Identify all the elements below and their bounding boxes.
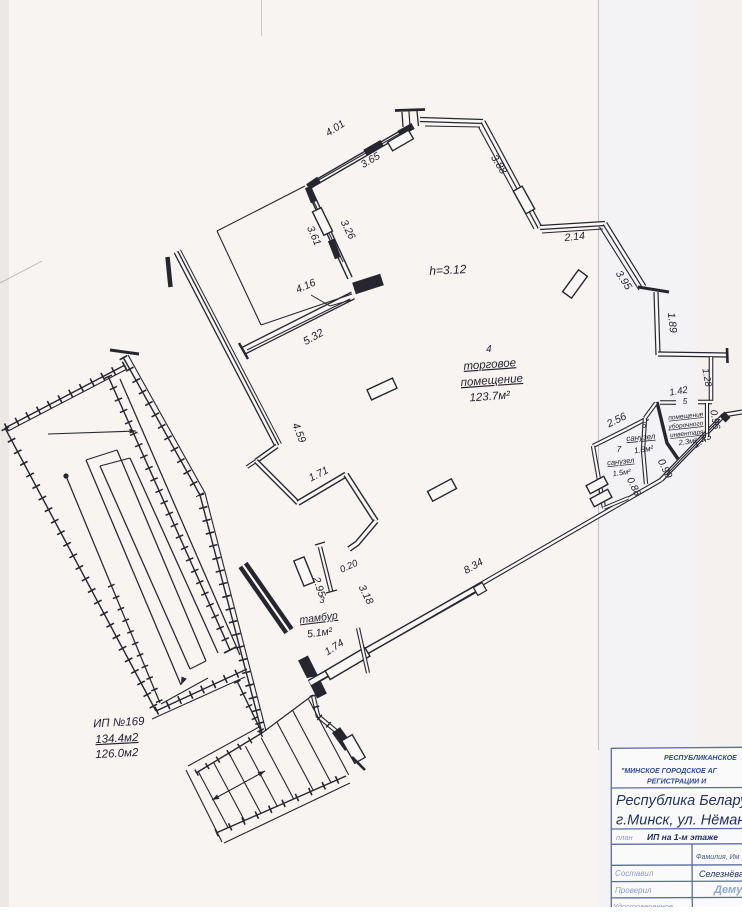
svg-text:h=3.12: h=3.12 (429, 262, 467, 278)
svg-text:Удостоверенное: Удостоверенное (612, 902, 673, 907)
svg-text:Составил: Составил (615, 869, 654, 878)
svg-text:134.4м2: 134.4м2 (95, 732, 139, 746)
svg-text:Проверил: Проверил (615, 886, 652, 895)
svg-text:Фамилия, Им: Фамилия, Им (696, 854, 740, 861)
svg-text:ИП на 1-м этаже: ИП на 1-м этаже (647, 832, 718, 842)
svg-text:7: 7 (617, 445, 622, 454)
svg-text:РЕГИСТРАЦИИ И: РЕГИСТРАЦИИ И (647, 779, 707, 786)
svg-text:6: 6 (642, 421, 647, 430)
svg-text:2.14: 2.14 (563, 230, 586, 244)
svg-text:Селезнёва: Селезнёва (699, 869, 742, 879)
svg-text:"МИНСКОЕ ГОРОДСКОЕ АГ: "МИНСКОЕ ГОРОДСКОЕ АГ (621, 768, 718, 775)
svg-text:г.Минск, ул. Нёманс: г.Минск, ул. Нёманс (616, 813, 742, 829)
svg-text:1.89: 1.89 (665, 312, 679, 334)
svg-text:РЕСПУБЛИКАНСКОЕ: РЕСПУБЛИКАНСКОЕ (664, 755, 737, 762)
svg-text:5: 5 (683, 397, 688, 406)
svg-text:план: план (616, 833, 633, 842)
svg-text:Дему: Дему (713, 884, 742, 896)
svg-text:Республика Беларус: Республика Беларус (616, 793, 742, 809)
svg-text:126.0м2: 126.0м2 (95, 747, 139, 761)
svg-text:3: 3 (319, 595, 324, 605)
